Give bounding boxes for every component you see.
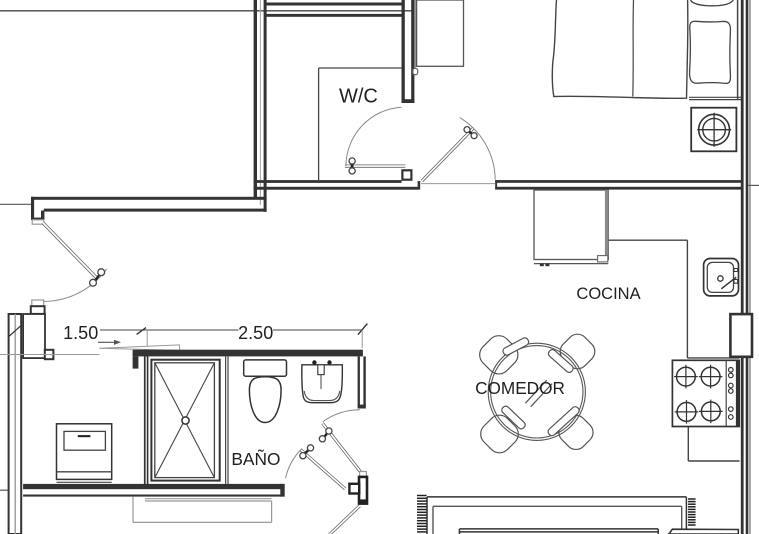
svg-text:COMEDOR: COMEDOR bbox=[475, 378, 565, 398]
svg-text:BAÑO: BAÑO bbox=[231, 449, 280, 469]
svg-text:COCINA: COCINA bbox=[576, 285, 640, 303]
svg-text:2.50: 2.50 bbox=[238, 323, 273, 343]
svg-text:W/C: W/C bbox=[339, 85, 378, 107]
svg-text:1.50: 1.50 bbox=[63, 323, 98, 343]
